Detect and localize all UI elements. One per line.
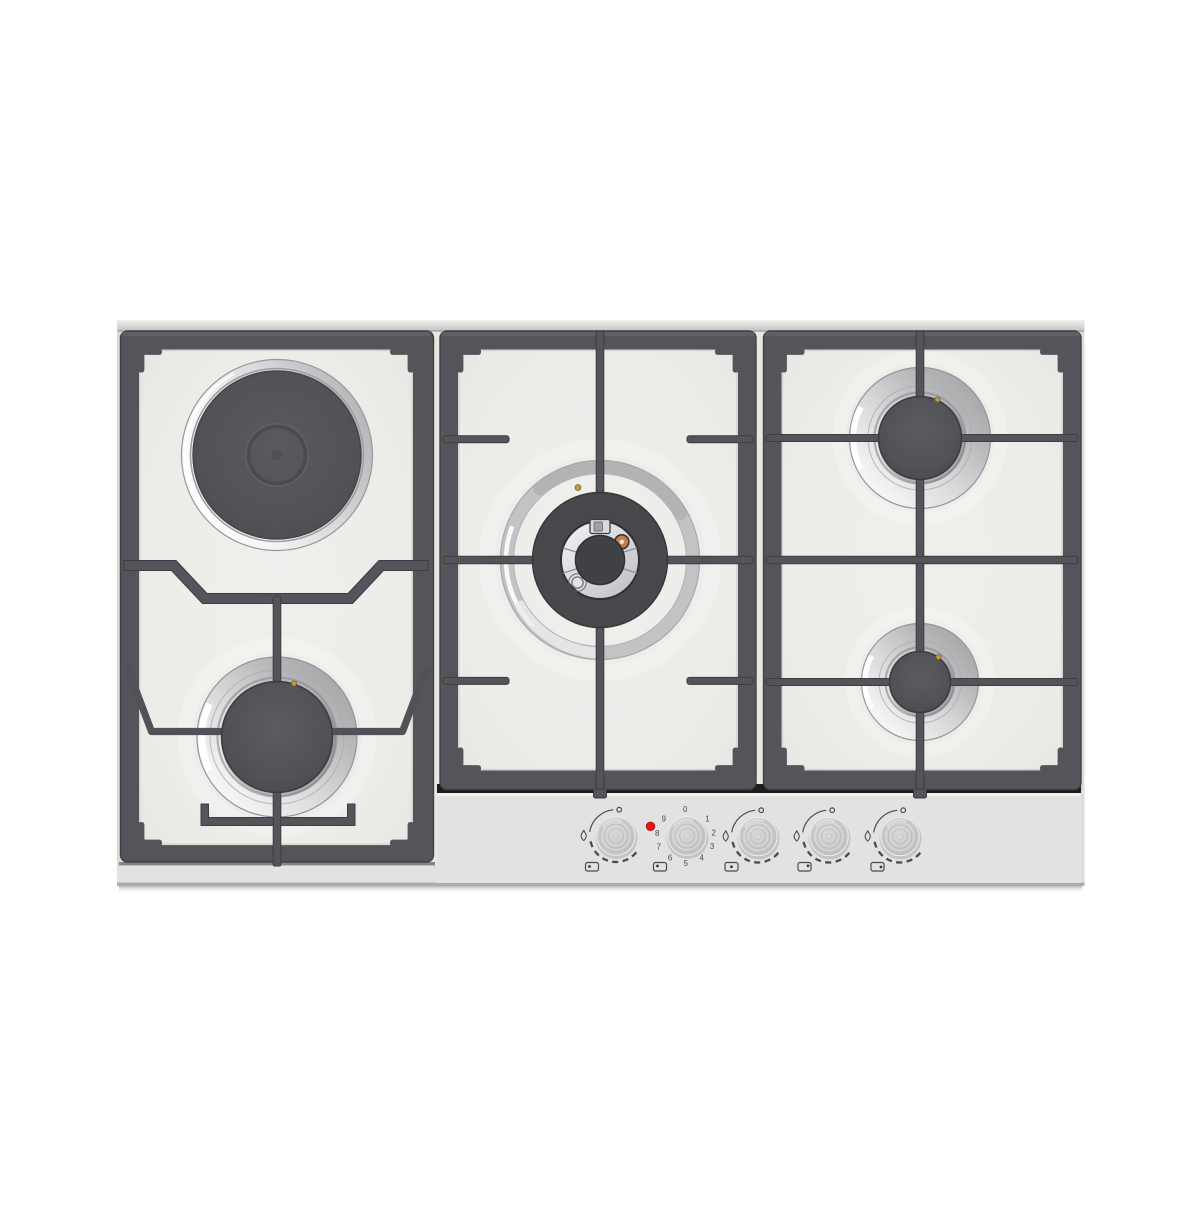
svg-text:9: 9 (662, 815, 666, 824)
svg-text:0: 0 (683, 805, 688, 814)
svg-text:7: 7 (657, 843, 661, 852)
svg-text:3: 3 (710, 842, 714, 851)
svg-text:6: 6 (668, 854, 672, 863)
svg-text:5: 5 (684, 859, 689, 868)
svg-text:1: 1 (705, 815, 709, 824)
svg-text:8: 8 (655, 829, 659, 838)
svg-text:4: 4 (700, 854, 705, 863)
svg-text:2: 2 (712, 828, 716, 837)
